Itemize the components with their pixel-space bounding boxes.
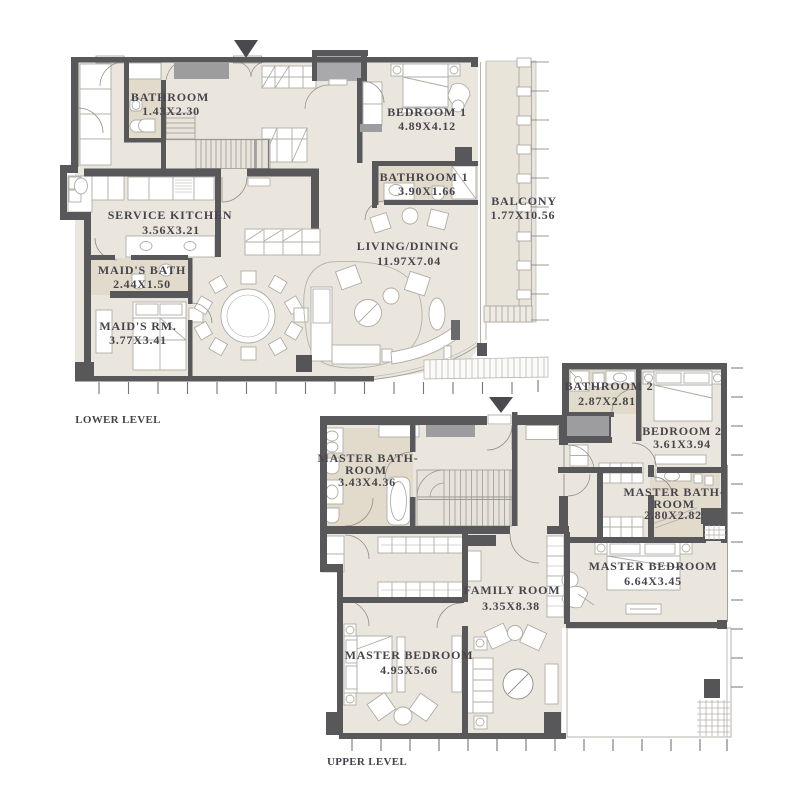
svg-text:BEDROOM 1: BEDROOM 1: [387, 105, 467, 119]
svg-text:LIVING/DINING: LIVING/DINING: [357, 239, 459, 253]
svg-text:2.80X2.82: 2.80X2.82: [644, 508, 702, 522]
svg-text:3.43X4.36: 3.43X4.36: [338, 475, 396, 489]
svg-text:MASTER BEDROOM: MASTER BEDROOM: [345, 648, 474, 662]
svg-text:BATHROOM: BATHROOM: [131, 90, 209, 104]
svg-text:2.87X2.81: 2.87X2.81: [578, 394, 636, 408]
svg-text:LOWER LEVEL: LOWER LEVEL: [75, 414, 161, 426]
svg-text:3.77X3.41: 3.77X3.41: [109, 333, 167, 347]
svg-text:6.64X3.45: 6.64X3.45: [624, 574, 682, 588]
svg-text:3.90X1.66: 3.90X1.66: [398, 184, 456, 198]
svg-text:FAMILY ROOM: FAMILY ROOM: [464, 583, 561, 597]
svg-text:SERVICE KITCHEN: SERVICE KITCHEN: [108, 208, 233, 222]
svg-text:3.56X3.21: 3.56X3.21: [142, 223, 200, 237]
svg-text:2.44X1.50: 2.44X1.50: [113, 277, 171, 291]
svg-text:MAID'S RM.: MAID'S RM.: [99, 319, 176, 333]
svg-text:4.95X5.66: 4.95X5.66: [380, 663, 438, 677]
svg-text:11.97X7.04: 11.97X7.04: [377, 254, 441, 268]
svg-text:UPPER LEVEL: UPPER LEVEL: [327, 756, 407, 768]
svg-text:4.89X4.12: 4.89X4.12: [398, 119, 456, 133]
svg-text:BEDROOM 2: BEDROOM 2: [642, 424, 722, 438]
svg-text:BALCONY: BALCONY: [491, 194, 557, 208]
svg-text:1.77X10.56: 1.77X10.56: [491, 208, 556, 222]
svg-text:MASTER BEDROOM: MASTER BEDROOM: [589, 559, 718, 573]
svg-text:BATHROOM 2: BATHROOM 2: [565, 379, 654, 393]
svg-text:MAID'S BATH: MAID'S BATH: [98, 263, 186, 277]
svg-text:3.35X8.38: 3.35X8.38: [482, 599, 540, 613]
svg-text:1.43X2.30: 1.43X2.30: [142, 104, 200, 118]
svg-text:BATHROOM 1: BATHROOM 1: [380, 170, 469, 184]
svg-text:3.61X3.94: 3.61X3.94: [653, 437, 711, 451]
